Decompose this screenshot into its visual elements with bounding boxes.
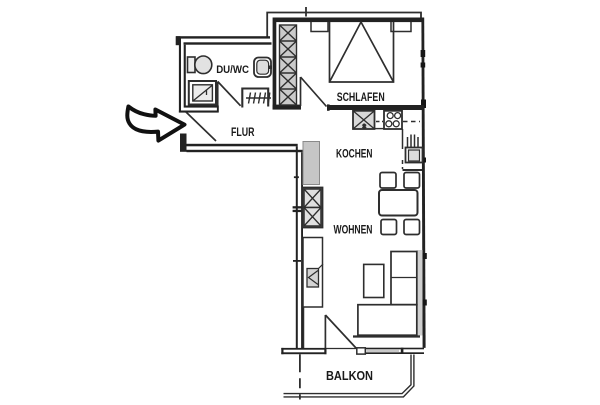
svg-text:FLUR: FLUR xyxy=(231,127,255,139)
svg-text:BALKON: BALKON xyxy=(326,368,373,383)
svg-text:WOHNEN: WOHNEN xyxy=(334,222,373,236)
svg-text:KOCHEN: KOCHEN xyxy=(336,146,373,160)
svg-text:DU/WC: DU/WC xyxy=(216,64,249,76)
svg-text:SCHLAFEN: SCHLAFEN xyxy=(337,90,385,104)
